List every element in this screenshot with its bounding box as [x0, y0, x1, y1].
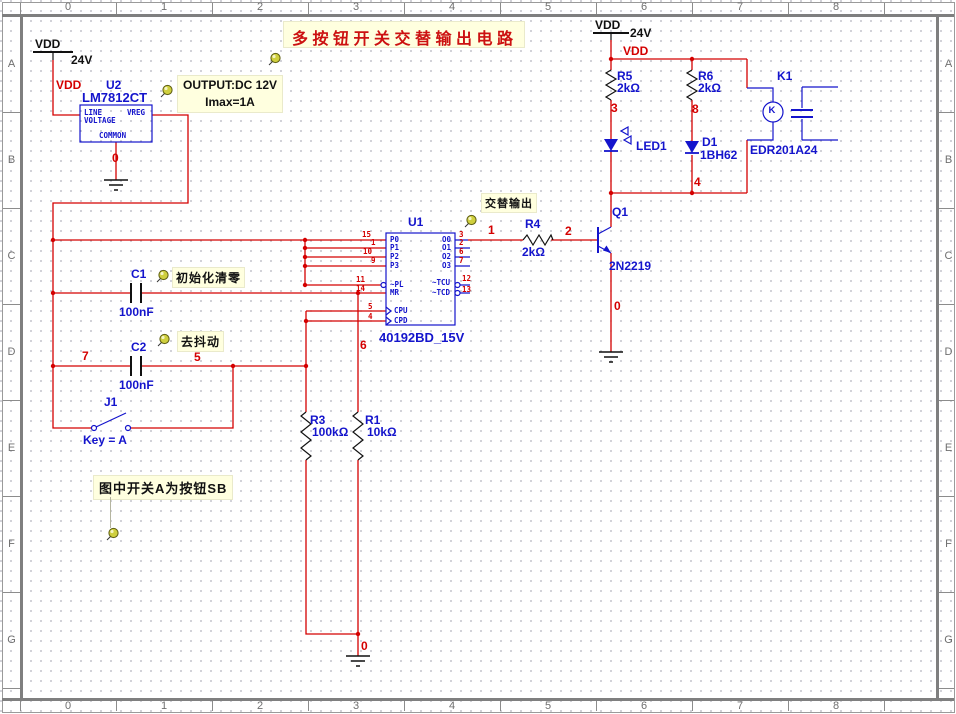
d1-value-label[interactable]: 1BH62	[700, 149, 737, 162]
j1-value-label[interactable]: Key = A	[83, 434, 127, 447]
k1-relay-symbol[interactable]	[747, 87, 838, 140]
u1-pinnum-13: 13	[462, 286, 471, 294]
r1-value-label[interactable]: 10kΩ	[367, 426, 397, 439]
q1-ref-label[interactable]: Q1	[612, 206, 628, 219]
c2-capacitor-symbol[interactable]	[131, 356, 141, 376]
junction-dot	[231, 364, 235, 368]
net-label-vdd[interactable]: VDD	[623, 45, 648, 58]
vdd-symbol-label[interactable]: VDD	[35, 38, 60, 51]
u1-pin-o1: O1	[442, 244, 451, 252]
net-label-7[interactable]: 7	[82, 350, 89, 363]
r5-resistor-symbol[interactable]	[606, 70, 616, 100]
wire-net5[interactable]	[130, 311, 386, 428]
net-label-8[interactable]: 8	[692, 103, 699, 116]
vdd-symbol-label[interactable]: VDD	[595, 19, 620, 32]
net-label-3[interactable]: 3	[611, 102, 618, 115]
u1-pinnum-2: 2	[459, 239, 464, 247]
junction-dot	[690, 191, 694, 195]
u1-pin-p3: P3	[390, 262, 399, 270]
u1-pl-inversion-bubble	[381, 283, 386, 288]
led1-ref-label[interactable]: LED1	[636, 140, 667, 153]
net-label-6[interactable]: 6	[360, 339, 367, 352]
junction-dot	[356, 632, 360, 636]
u1-pin-tcd: ~TCD	[432, 289, 450, 297]
vdd-voltage-label[interactable]: 24V	[71, 54, 92, 67]
r4-ref-label[interactable]: R4	[525, 218, 540, 231]
j1-switch-symbol[interactable]	[92, 413, 131, 431]
comment-pin-icon[interactable]	[105, 527, 120, 542]
u1-clock-marks	[386, 307, 391, 325]
u1-pin-cpd: CPD	[394, 317, 408, 325]
net-label-0[interactable]: 0	[614, 300, 621, 313]
d1-ref-label[interactable]: D1	[702, 136, 717, 149]
ground-symbol-bottom[interactable]	[346, 656, 370, 666]
u1-pinnum-11: 11	[356, 276, 365, 284]
output-spec-line2: Imax=1A	[178, 94, 282, 111]
junction-dot	[609, 191, 613, 195]
comment-pin-icon[interactable]	[155, 269, 170, 284]
junction-dot	[51, 364, 55, 368]
r1-resistor-symbol[interactable]	[353, 412, 363, 460]
junction-dot	[303, 238, 307, 242]
comment-pin-icon[interactable]	[159, 84, 174, 99]
c2-ref-label[interactable]: C2	[131, 341, 146, 354]
ground-symbol-q1[interactable]	[599, 352, 623, 362]
u2-pin-voltage: VOLTAGE	[84, 117, 116, 125]
junction-dot	[304, 364, 308, 368]
u1-pinnum-1: 1	[371, 239, 376, 247]
debounce-note[interactable]: 去抖动	[177, 331, 224, 352]
j1-ref-label[interactable]: J1	[104, 396, 117, 409]
junction-dot	[303, 283, 307, 287]
r6-resistor-symbol[interactable]	[687, 70, 697, 100]
comment-pin-icon[interactable]	[156, 333, 171, 348]
u1-pinnum-9: 9	[371, 257, 376, 265]
r3-value-label[interactable]: 100kΩ	[312, 426, 348, 439]
alt-output-note[interactable]: 交替输出	[481, 193, 537, 213]
junction-dots	[51, 57, 694, 636]
r4-value-label[interactable]: 2kΩ	[522, 246, 545, 259]
u2-pin-vreg: VREG	[127, 109, 145, 117]
comment-pin-icon[interactable]	[267, 52, 282, 67]
net-label-2[interactable]: 2	[565, 225, 572, 238]
schematic-sheet: 0 1 2 3 4 5 6 7 8 0 1 2 3 4 5 6 7 8 A B …	[0, 0, 956, 714]
wire-net0-bottom[interactable]	[306, 460, 358, 656]
init-clear-note[interactable]: 初始化清零	[172, 267, 245, 288]
comment-pin-icon[interactable]	[463, 214, 478, 229]
u1-pinnum-5: 5	[368, 303, 373, 311]
net-label-vdd[interactable]: VDD	[56, 79, 81, 92]
c1-ref-label[interactable]: C1	[131, 268, 146, 281]
u1-pinnum-6: 6	[459, 248, 464, 256]
c1-capacitor-symbol[interactable]	[131, 283, 141, 303]
u1-part-label[interactable]: 40192BD_15V	[379, 331, 464, 345]
junction-dot	[51, 238, 55, 242]
net-label-1[interactable]: 1	[488, 224, 495, 237]
u1-pin-o3: O3	[442, 262, 451, 270]
led1-symbol[interactable]	[604, 127, 631, 151]
u1-pinnum-4: 4	[368, 313, 373, 321]
u1-tcd-inversion-bubble	[455, 291, 460, 296]
u1-pinnum-12: 12	[462, 275, 471, 283]
q1-transistor-symbol[interactable]	[598, 227, 611, 253]
u2-pin-common: COMMON	[99, 132, 126, 140]
net-label-0[interactable]: 0	[112, 152, 119, 165]
ground-symbol-u2[interactable]	[104, 180, 128, 190]
vdd-voltage-label[interactable]: 24V	[630, 27, 651, 40]
u1-pinnum-7: 7	[459, 257, 464, 265]
output-spec-note[interactable]: OUTPUT:DC 12V Imax=1A	[177, 75, 283, 113]
k1-coil-letter: K	[769, 106, 776, 116]
q1-value-label[interactable]: 2N2219	[609, 260, 651, 273]
u1-pin-mr: MR	[390, 289, 399, 297]
junction-dot	[303, 246, 307, 250]
title-note[interactable]: 多按钮开关交替输出电路	[283, 21, 525, 48]
u1-pinnum-10: 10	[363, 248, 372, 256]
u1-pinnum-15: 15	[362, 231, 371, 239]
switch-note[interactable]: 图中开关A为按钮SB	[93, 475, 233, 500]
junction-dot	[303, 255, 307, 259]
wire-vdd-right-rails[interactable]	[611, 40, 747, 193]
net-label-4[interactable]: 4	[694, 176, 701, 189]
k1-ref-label[interactable]: K1	[777, 70, 792, 83]
junction-dot	[303, 264, 307, 268]
r4-resistor-symbol[interactable]	[523, 235, 553, 245]
u1-pinnum-14: 14	[356, 285, 365, 293]
junction-dot	[609, 57, 613, 61]
output-spec-line1: OUTPUT:DC 12V	[178, 77, 282, 94]
r5-value-label[interactable]: 2kΩ	[617, 82, 640, 95]
net-label-0[interactable]: 0	[361, 640, 368, 653]
u1-ref-label[interactable]: U1	[408, 216, 423, 229]
u1-pin-o2: O2	[442, 253, 451, 261]
junction-dot	[51, 291, 55, 295]
junction-dot	[690, 57, 694, 61]
note-anchor-line	[110, 497, 111, 528]
u1-pin-cpu: CPU	[394, 307, 408, 315]
u1-tcu-inversion-bubble	[455, 283, 460, 288]
u1-pin-p2: P2	[390, 253, 399, 261]
net-label-5[interactable]: 5	[194, 351, 201, 364]
u1-pin-p1: P1	[390, 244, 399, 252]
u2-part-label[interactable]: LM7812CT	[82, 91, 147, 105]
c2-value-label[interactable]: 100nF	[119, 379, 154, 392]
u1-pin-tcu: ~TCU	[432, 279, 450, 287]
d1-diode-symbol[interactable]	[685, 141, 699, 153]
k1-value-label[interactable]: EDR201A24	[750, 144, 817, 157]
c1-value-label[interactable]: 100nF	[119, 306, 154, 319]
r6-value-label[interactable]: 2kΩ	[698, 82, 721, 95]
junction-dot	[304, 319, 308, 323]
